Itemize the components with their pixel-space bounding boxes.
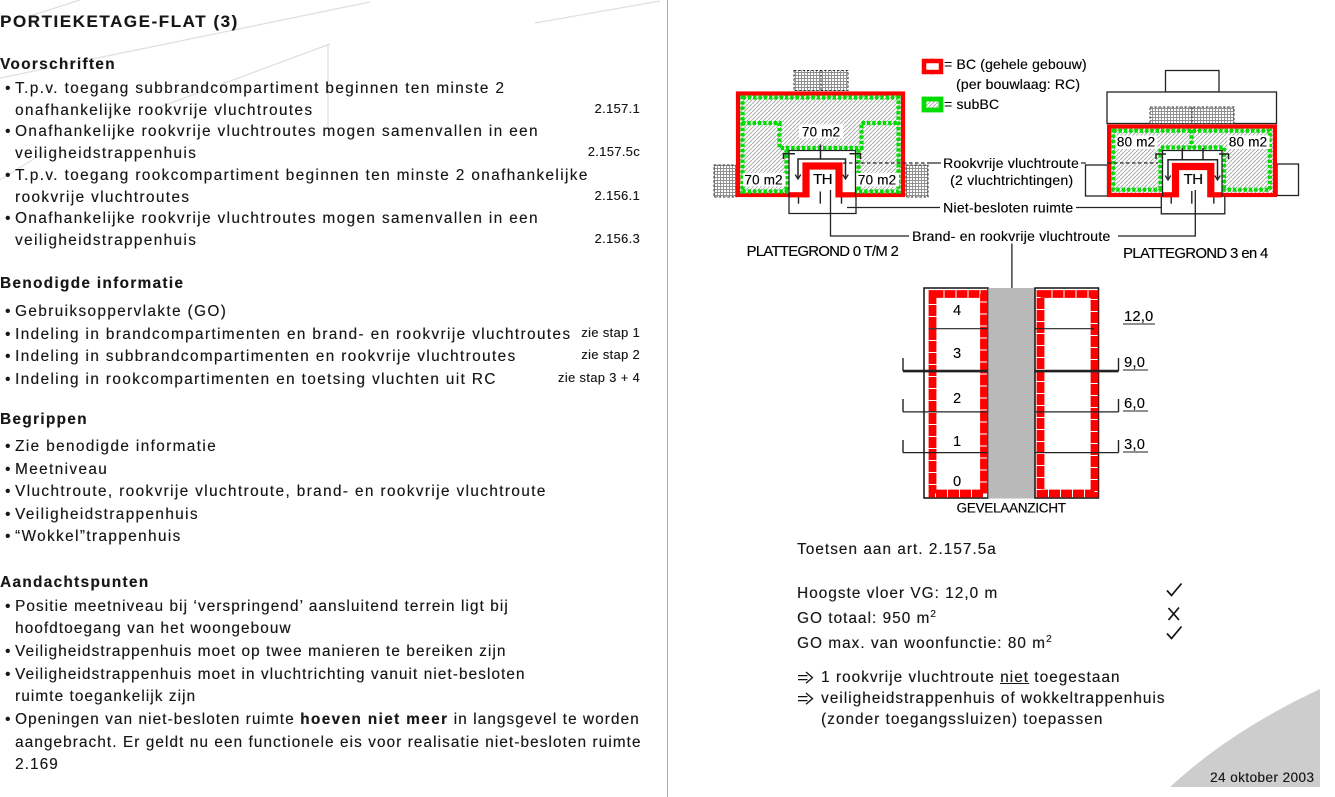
svg-text:70 m2: 70 m2 bbox=[744, 173, 783, 188]
svg-text:3: 3 bbox=[953, 346, 961, 362]
svg-text:PLATTEGROND 0 T/M 2: PLATTEGROND 0 T/M 2 bbox=[747, 244, 899, 260]
svg-text:Niet-besloten ruimte: Niet-besloten ruimte bbox=[943, 200, 1073, 216]
svg-text:Rookvrije vluchtroute: Rookvrije vluchtroute bbox=[943, 155, 1079, 171]
svg-text:GEVELAANZICHT: GEVELAANZICHT bbox=[957, 501, 1066, 516]
svg-text:TH: TH bbox=[1184, 171, 1203, 188]
svg-text:= BC (gehele gebouw): = BC (gehele gebouw) bbox=[944, 56, 1087, 72]
svg-text:(2 vluchtrichtingen): (2 vluchtrichtingen) bbox=[950, 172, 1073, 188]
svg-text:= subBC: = subBC bbox=[944, 96, 999, 112]
svg-text:12,0: 12,0 bbox=[1124, 309, 1153, 325]
svg-text:70 m2: 70 m2 bbox=[802, 125, 841, 140]
svg-text:4: 4 bbox=[953, 303, 961, 319]
svg-text:0: 0 bbox=[953, 474, 961, 490]
svg-text:80 m2: 80 m2 bbox=[1117, 135, 1156, 150]
svg-text:9,0: 9,0 bbox=[1124, 355, 1145, 371]
svg-text:3,0: 3,0 bbox=[1124, 437, 1145, 453]
svg-text:1: 1 bbox=[953, 434, 961, 450]
svg-text:PLATTEGROND 3 en 4: PLATTEGROND 3 en 4 bbox=[1123, 246, 1268, 262]
svg-text:80 m2: 80 m2 bbox=[1229, 135, 1268, 150]
svg-text:2: 2 bbox=[953, 391, 961, 407]
svg-text:Brand- en rookvrije vluchtrout: Brand- en rookvrije vluchtroute bbox=[912, 228, 1110, 244]
svg-text:TH: TH bbox=[813, 171, 832, 188]
svg-text:6,0: 6,0 bbox=[1124, 396, 1145, 412]
svg-text:70 m2: 70 m2 bbox=[858, 173, 897, 188]
svg-text:(per bouwlaag: RC): (per bouwlaag: RC) bbox=[956, 76, 1080, 92]
